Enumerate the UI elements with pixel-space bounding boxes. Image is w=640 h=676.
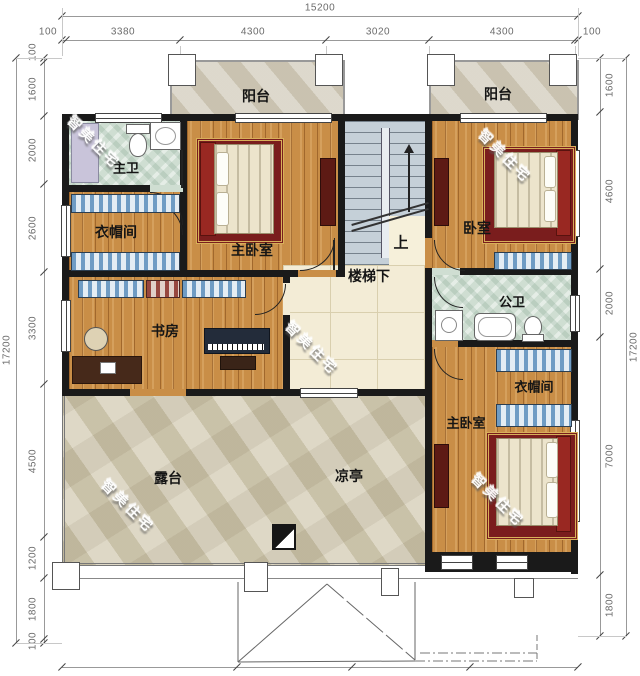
door-leaf	[181, 150, 183, 188]
dim-top-3: 3020	[366, 27, 390, 38]
wall	[425, 121, 432, 238]
dim-left-4: 3300	[28, 316, 39, 340]
dim-top-total: 15200	[305, 3, 335, 14]
dim-left-3: 2600	[28, 216, 39, 240]
dim-line-right-segments	[600, 58, 601, 636]
door-gap	[425, 238, 432, 268]
wardrobe	[496, 404, 572, 427]
dim-left-6: 1200	[28, 546, 39, 570]
dim-left-8: 100	[28, 632, 39, 650]
balcony-column	[315, 54, 343, 86]
washer-drum	[441, 317, 457, 333]
dim-left-1: 1600	[28, 77, 39, 101]
tv-cabinet	[434, 158, 449, 226]
porch-column	[52, 562, 80, 590]
dim-line-top-segments	[62, 40, 578, 41]
bookshelf	[78, 280, 144, 298]
wardrobe	[496, 349, 572, 372]
room-label-closet-right: 衣帽间	[514, 382, 553, 395]
wall	[180, 121, 187, 270]
wardrobe	[71, 252, 180, 271]
extension-line	[62, 8, 63, 56]
room-label-master-bedroom-bottom: 主卧室	[446, 418, 485, 431]
piano-bench	[220, 356, 256, 370]
floor-plan-canvas: 15200 100 3380 4300 3020 4300 100 17200 …	[0, 0, 640, 676]
dim-left-5: 4500	[28, 449, 39, 473]
room-label-terrace: 露台	[154, 472, 182, 486]
room-label-shared-bath: 公卫	[499, 297, 525, 310]
balcony-door-left	[235, 113, 332, 123]
extension-line	[16, 58, 62, 59]
piano-keys	[208, 344, 264, 350]
dim-tick	[574, 663, 582, 671]
door-gap	[432, 340, 458, 347]
stair-arrow-shaft	[408, 152, 410, 212]
extension-line	[578, 8, 579, 56]
door-gap	[298, 270, 336, 277]
bed-pillow	[544, 190, 556, 222]
balcony-column	[427, 54, 455, 86]
dim-right-1: 4600	[605, 179, 616, 203]
terrace-sliding-door	[300, 388, 358, 398]
pavilion-column	[272, 524, 296, 550]
dim-top-1: 3380	[111, 27, 135, 38]
balcony-column	[549, 54, 577, 86]
wall	[62, 389, 432, 396]
extension-line	[16, 643, 62, 644]
room-label-closet-left: 衣帽间	[95, 226, 137, 240]
window	[570, 295, 580, 332]
dim-line-top-total	[62, 16, 578, 17]
sink-basin	[155, 127, 176, 145]
room-label-pavilion: 凉亭	[335, 470, 363, 484]
dim-line-left-segments	[44, 58, 45, 643]
balcony-door-right	[460, 113, 547, 123]
toilet	[522, 334, 544, 342]
bookshelf	[146, 280, 180, 298]
wardrobe	[494, 252, 572, 270]
stair-arrow-head	[404, 144, 414, 153]
bed-pillow	[546, 482, 558, 518]
desk-book	[100, 362, 116, 374]
dim-top-4: 4300	[490, 27, 514, 38]
bed-headboard	[556, 150, 571, 236]
room-label-up: 上	[393, 236, 408, 251]
balcony-column	[168, 54, 196, 86]
room-label-study: 书房	[151, 325, 179, 339]
chair	[84, 327, 108, 351]
bookshelf	[182, 280, 246, 298]
dim-line-left-total	[16, 58, 17, 643]
dim-right-3: 7000	[605, 444, 616, 468]
door-gap	[130, 389, 186, 396]
window	[61, 205, 71, 257]
room-label-under-stairs: 楼梯下	[348, 270, 390, 284]
dim-line-right-total	[626, 58, 627, 636]
bed-pillow	[216, 192, 229, 226]
window	[441, 555, 473, 570]
bathtub-basin	[478, 317, 512, 337]
room-label-balcony-left: 阳台	[242, 90, 270, 104]
dim-top-2: 4300	[241, 27, 265, 38]
dim-top-5: 100	[583, 27, 601, 38]
porch-roof-gable	[200, 575, 560, 675]
dim-right-0: 1600	[605, 73, 616, 97]
bed-pillow	[544, 156, 556, 188]
piano	[204, 328, 270, 354]
extension-line	[578, 58, 626, 59]
window	[61, 300, 71, 352]
door-leaf	[333, 240, 335, 270]
window	[496, 555, 528, 570]
dim-top-0: 100	[39, 27, 57, 38]
bed-pillow	[546, 442, 558, 478]
wall	[425, 268, 432, 556]
dim-left-total: 17200	[2, 335, 13, 365]
dim-right-total: 17200	[629, 332, 640, 362]
bed-headboard	[556, 436, 571, 532]
tv-cabinet	[434, 444, 449, 508]
room-label-bedroom: 卧室	[463, 222, 491, 236]
dim-left-7: 1800	[28, 597, 39, 621]
wall	[338, 121, 345, 270]
tv-cabinet	[320, 158, 336, 226]
door-gap	[150, 185, 183, 192]
dim-right-4: 1800	[605, 593, 616, 617]
room-label-balcony-right: 阳台	[484, 88, 512, 102]
wardrobe	[71, 194, 180, 213]
dim-right-2: 2000	[605, 291, 616, 315]
room-label-master-bedroom-top: 主卧室	[231, 244, 273, 258]
bed-pillow	[216, 152, 229, 186]
dim-left-2: 2000	[28, 138, 39, 162]
toilet-bowl	[129, 133, 147, 157]
extension-line	[578, 636, 626, 637]
